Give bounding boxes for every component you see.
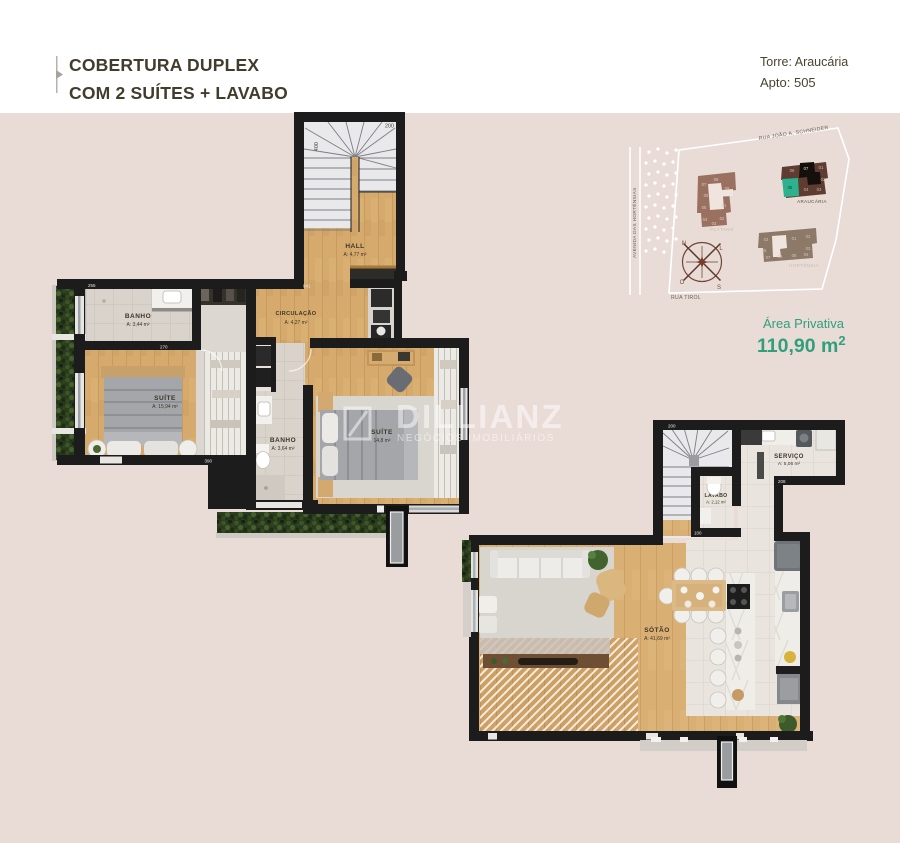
svg-text:O: O <box>680 280 685 286</box>
svg-text:PLÁTANO: PLÁTANO <box>710 226 734 232</box>
svg-text:09: 09 <box>725 186 730 191</box>
svg-text:07: 07 <box>766 255 771 260</box>
svg-text:06: 06 <box>778 254 783 259</box>
svg-text:Torre: Araucária: Torre: Araucária <box>760 55 848 69</box>
svg-text:04: 04 <box>804 252 809 257</box>
svg-text:03: 03 <box>817 187 822 192</box>
svg-text:HORTÊNSIA: HORTÊNSIA <box>789 261 819 268</box>
svg-text:110,90 m2: 110,90 m2 <box>757 333 846 357</box>
svg-text:A: 4,27 m²: A: 4,27 m² <box>284 320 307 326</box>
svg-text:06: 06 <box>704 193 709 198</box>
svg-text:A: 2,12 m²: A: 2,12 m² <box>706 500 726 505</box>
svg-text:04: 04 <box>703 217 708 222</box>
svg-text:04: 04 <box>804 187 809 192</box>
svg-text:DILLIANZ: DILLIANZ <box>396 398 564 435</box>
svg-text:SUÍTE: SUÍTE <box>371 427 393 436</box>
svg-text:07: 07 <box>804 166 809 171</box>
svg-text:01: 01 <box>722 203 727 208</box>
svg-text:255: 255 <box>88 283 96 288</box>
svg-text:14,8 m²: 14,8 m² <box>374 438 391 444</box>
svg-text:01: 01 <box>819 165 824 170</box>
svg-text:03: 03 <box>712 221 717 226</box>
svg-text:200: 200 <box>385 124 394 130</box>
svg-text:08: 08 <box>714 177 719 182</box>
svg-text:270: 270 <box>160 345 168 350</box>
svg-text:05: 05 <box>788 185 793 190</box>
svg-text:RUA TIROL: RUA TIROL <box>671 295 701 301</box>
svg-text:ARAUCÁRIA: ARAUCÁRIA <box>797 198 827 204</box>
svg-text:05: 05 <box>792 253 797 258</box>
svg-text:A: 4,77 m²: A: 4,77 m² <box>343 252 366 258</box>
svg-text:03: 03 <box>806 246 811 251</box>
svg-text:05: 05 <box>762 248 767 253</box>
svg-text:SÓTÃO: SÓTÃO <box>644 625 670 634</box>
svg-text:02: 02 <box>821 177 826 182</box>
svg-text:01: 01 <box>792 236 797 241</box>
svg-text:A: 5,06 m²: A: 5,06 m² <box>778 461 801 467</box>
svg-text:CIRCULAÇÃO: CIRCULAÇÃO <box>276 310 317 317</box>
svg-text:100: 100 <box>694 531 702 536</box>
svg-text:A: 3,44 m²: A: 3,44 m² <box>126 322 149 328</box>
svg-text:390: 390 <box>204 459 212 464</box>
svg-text:02: 02 <box>720 216 725 221</box>
svg-text:HALL: HALL <box>345 243 364 250</box>
svg-text:NEGÓCIOS IMOBILIÁRIOS: NEGÓCIOS IMOBILIÁRIOS <box>397 431 555 444</box>
svg-text:400: 400 <box>314 142 320 151</box>
svg-text:SERVIÇO: SERVIÇO <box>774 454 804 460</box>
svg-text:S: S <box>717 285 721 291</box>
svg-text:03: 03 <box>764 237 769 242</box>
svg-text:A: 41,69 m²: A: 41,69 m² <box>644 636 670 642</box>
svg-text:200: 200 <box>668 424 676 429</box>
svg-text:A: 15,94 m²: A: 15,94 m² <box>152 404 178 410</box>
svg-text:COM 2 SUÍTES + LAVABO: COM 2 SUÍTES + LAVABO <box>69 82 288 103</box>
svg-text:941: 941 <box>303 284 311 289</box>
svg-text:06: 06 <box>790 168 795 173</box>
svg-text:07: 07 <box>702 182 707 187</box>
svg-text:COBERTURA DUPLEX: COBERTURA DUPLEX <box>69 55 259 75</box>
svg-text:05: 05 <box>702 205 707 210</box>
svg-text:A: 3,64 m²: A: 3,64 m² <box>271 446 294 452</box>
svg-text:208: 208 <box>778 479 786 484</box>
svg-text:BANHO: BANHO <box>125 313 151 320</box>
svg-text:N: N <box>682 241 686 247</box>
svg-text:Apto: 505: Apto: 505 <box>760 75 816 90</box>
svg-text:BANHO: BANHO <box>270 437 296 444</box>
svg-text:SUÍTE: SUÍTE <box>154 393 176 402</box>
svg-text:02: 02 <box>806 234 811 239</box>
svg-text:Área Privativa: Área Privativa <box>763 316 845 331</box>
